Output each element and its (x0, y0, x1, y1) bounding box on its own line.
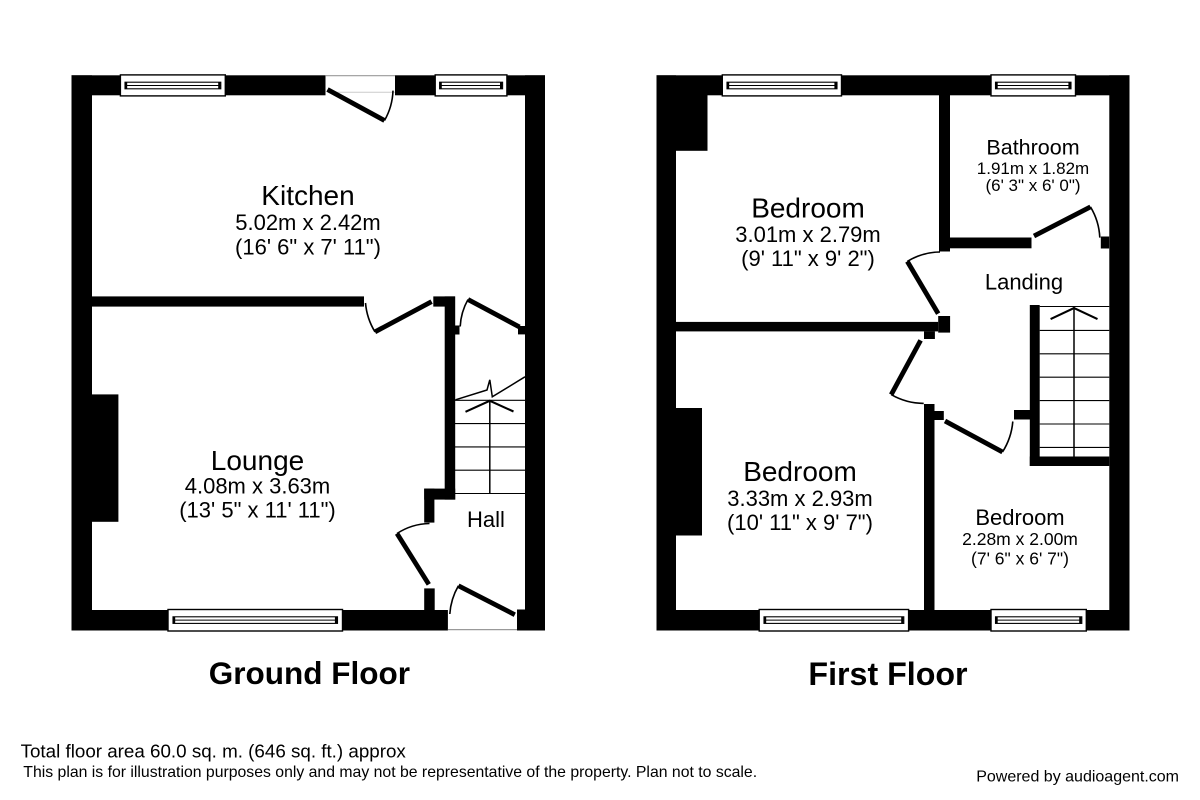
svg-text:(16' 6" x 7' 11"): (16' 6" x 7' 11") (235, 235, 381, 260)
svg-text:(13' 5" x 11' 11"): (13' 5" x 11' 11") (179, 498, 336, 523)
svg-text:(9' 11" x 9' 2"): (9' 11" x 9' 2") (741, 246, 875, 271)
svg-text:Bathroom: Bathroom (986, 136, 1079, 160)
svg-text:Landing: Landing (985, 270, 1063, 295)
svg-text:Ground Floor: Ground Floor (209, 655, 410, 691)
svg-text:Bedroom: Bedroom (751, 193, 865, 224)
svg-text:First Floor: First Floor (808, 656, 968, 692)
svg-text:This plan is for illustration: This plan is for illustration purposes o… (23, 764, 757, 781)
svg-text:(6' 3" x 6' 0"): (6' 3" x 6' 0") (985, 176, 1080, 195)
svg-text:Bedroom: Bedroom (743, 456, 857, 487)
svg-text:5.02m x 2.42m: 5.02m x 2.42m (235, 210, 381, 235)
svg-text:2.28m x 2.00m: 2.28m x 2.00m (962, 529, 1078, 549)
svg-text:Kitchen: Kitchen (261, 180, 354, 211)
svg-text:3.33m x 2.93m: 3.33m x 2.93m (727, 486, 873, 511)
svg-text:(7' 6" x 6' 7"): (7' 6" x 6' 7") (971, 549, 1069, 569)
svg-text:Powered by audioagent.com: Powered by audioagent.com (976, 769, 1179, 786)
svg-text:Lounge: Lounge (211, 445, 304, 476)
svg-text:(10' 11" x 9' 7"): (10' 11" x 9' 7") (727, 510, 873, 535)
svg-text:3.01m x 2.79m: 3.01m x 2.79m (735, 222, 881, 247)
svg-text:Total floor area 60.0 sq. m. (: Total floor area 60.0 sq. m. (646 sq. ft… (21, 741, 407, 762)
svg-text:Bedroom: Bedroom (975, 505, 1064, 530)
svg-text:Hall: Hall (467, 507, 505, 532)
svg-text:4.08m x 3.63m: 4.08m x 3.63m (185, 474, 331, 499)
